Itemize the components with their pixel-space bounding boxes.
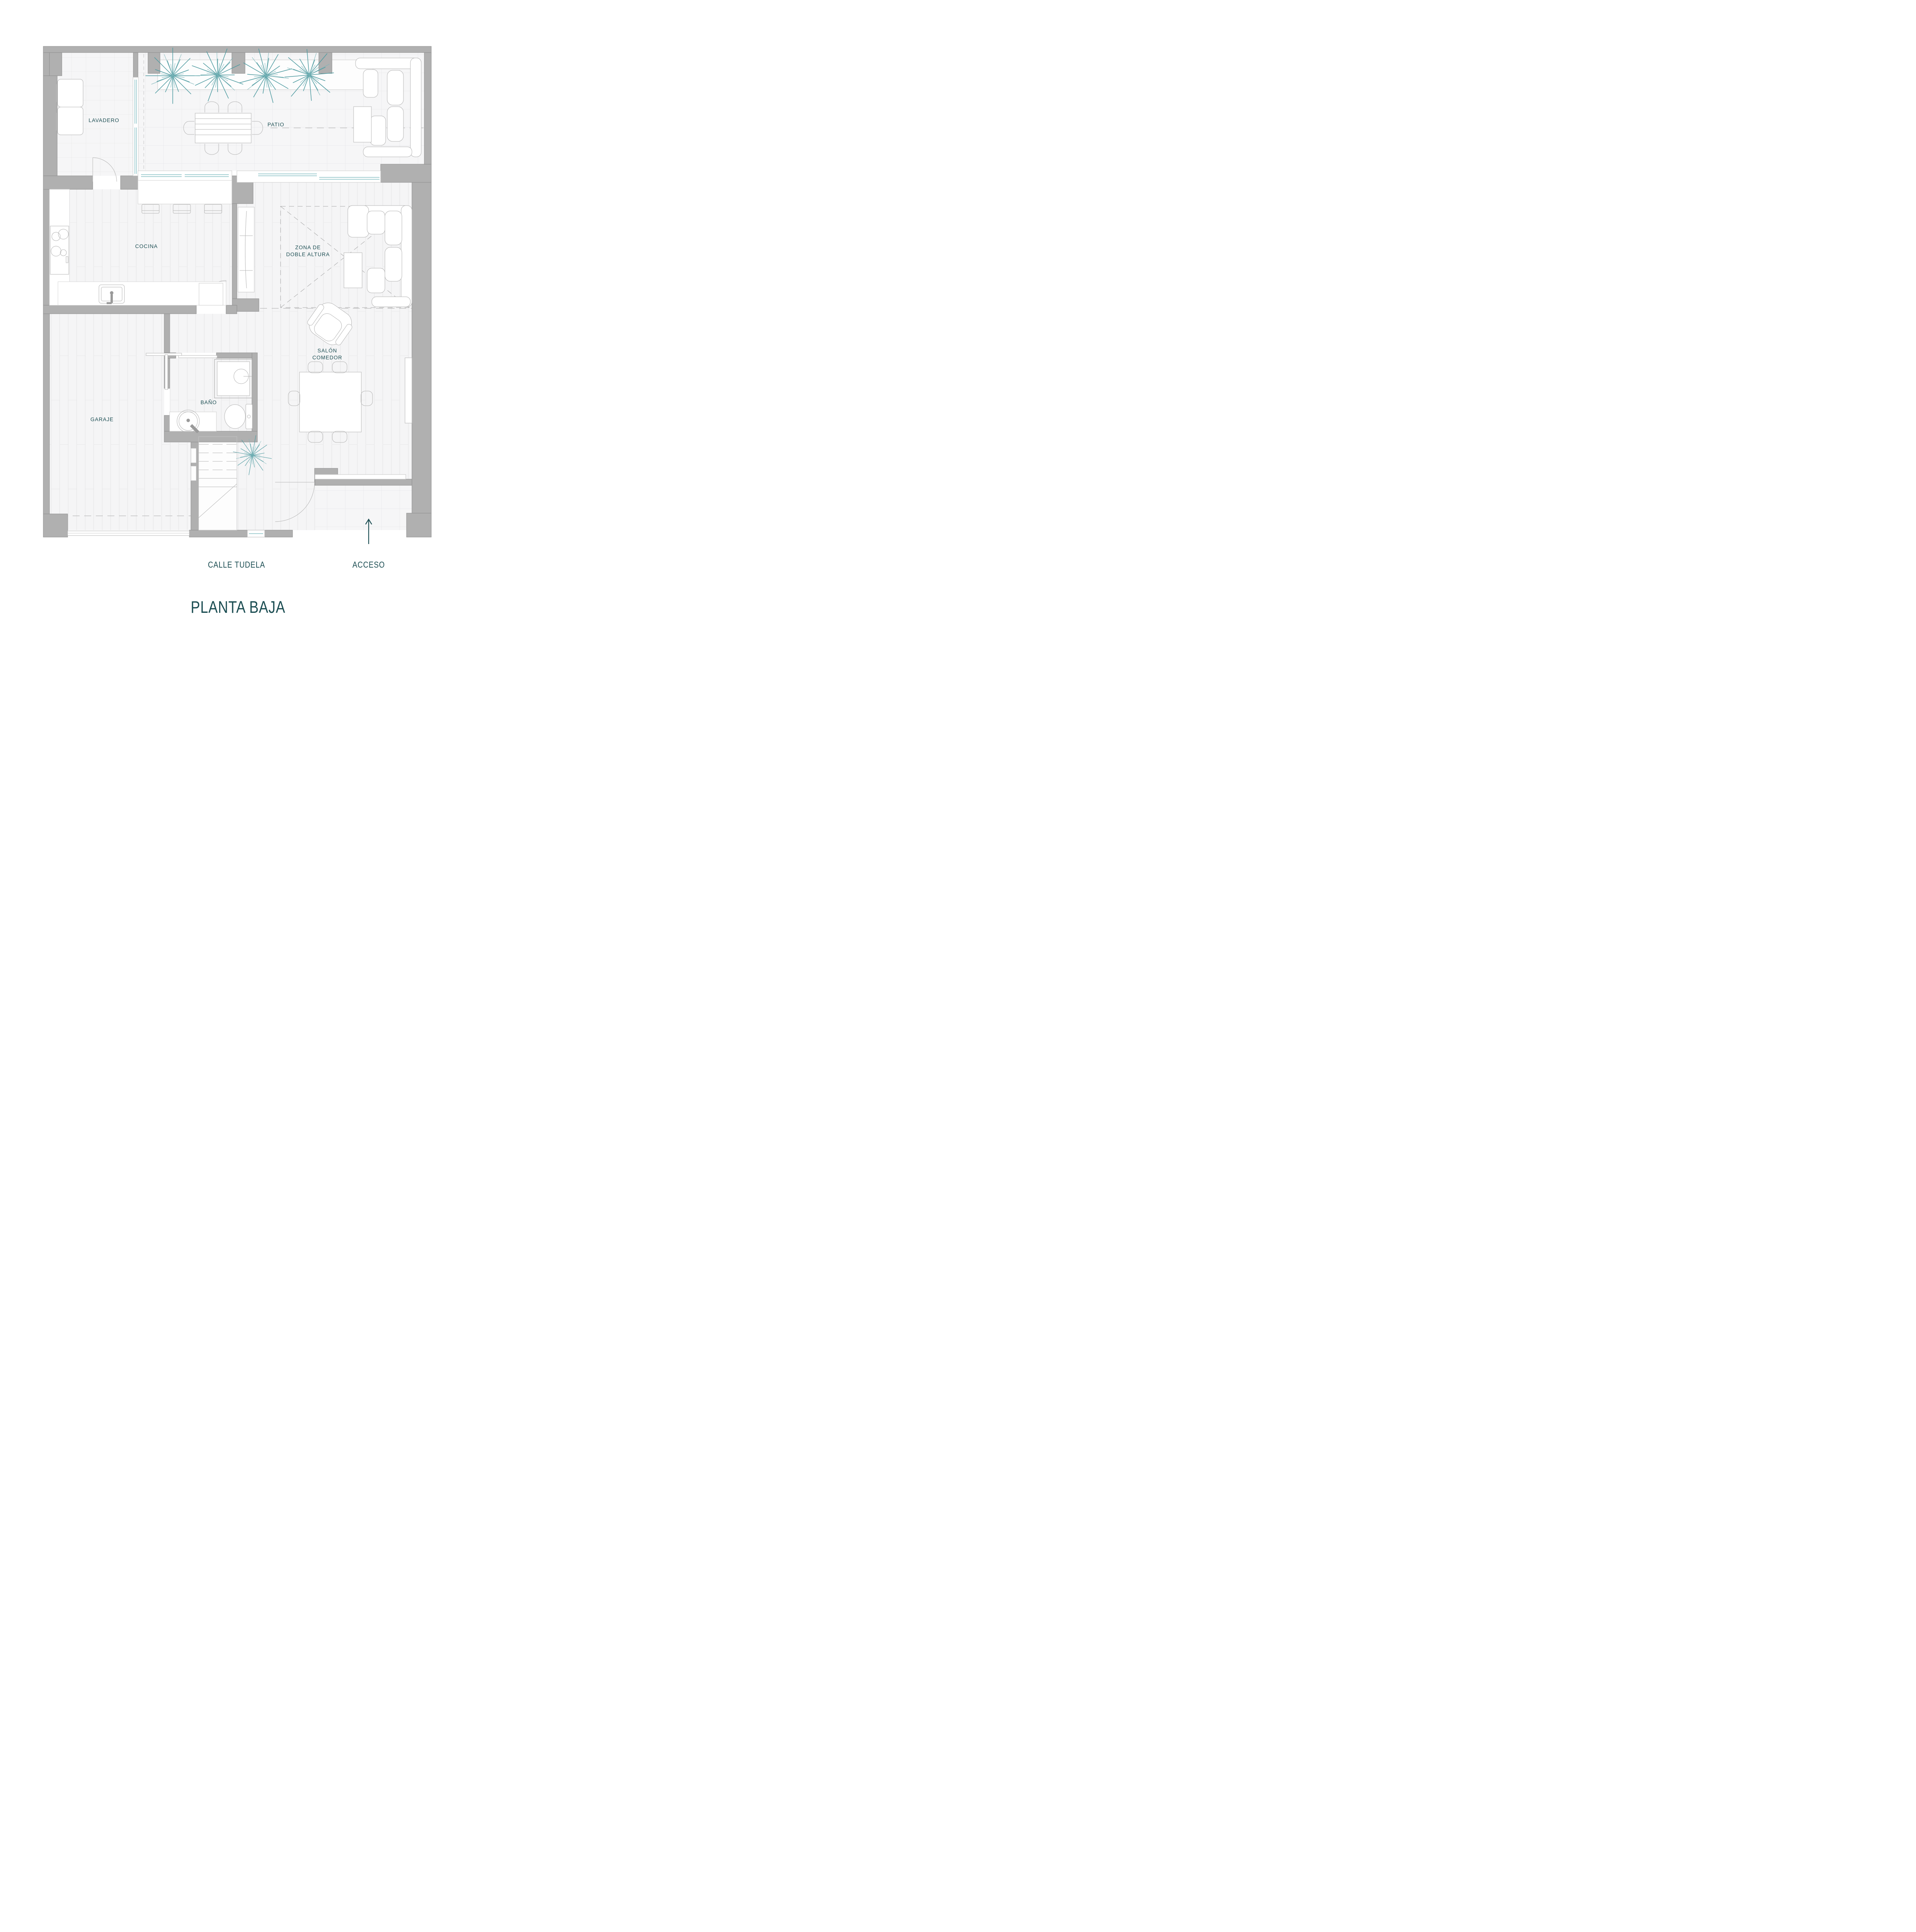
room-label-patio: PATIO <box>267 121 284 128</box>
garage-sliding-door <box>165 355 168 389</box>
porch-wall <box>315 479 412 485</box>
salon-line1: SALÓN <box>312 347 342 354</box>
toilet <box>225 404 252 429</box>
room-label-cocina: COCINA <box>135 243 158 250</box>
patio-side-table <box>354 107 371 142</box>
room-label-zona-doble-altura: ZONA DE DOBLE ALTURA <box>286 244 330 258</box>
salon-line2: COMEDOR <box>312 354 342 361</box>
room-label-garaje: GARAJE <box>90 416 114 423</box>
cooktop <box>50 226 69 274</box>
coffee-table <box>344 253 362 288</box>
floor-plan-page: LAVADERO PATIO COCINA ZONA DE DOBLE ALTU… <box>0 0 479 678</box>
bathroom-sliding-door <box>146 353 182 355</box>
washer-dryer <box>56 79 83 135</box>
access-label: ACCESO <box>352 560 385 570</box>
shower <box>214 359 252 398</box>
room-label-salon-comedor: SALÓN COMEDOR <box>312 347 342 361</box>
page-title: PLANTA BAJA <box>191 598 286 617</box>
street-label: CALLE TUDELA <box>208 560 265 570</box>
room-label-bano: BAÑO <box>201 399 217 406</box>
zona-line1: ZONA DE <box>286 244 330 251</box>
bathroom-vanity <box>170 410 216 434</box>
zona-line2: DOBLE ALTURA <box>286 251 330 258</box>
room-label-lavadero: LAVADERO <box>88 117 119 124</box>
radiator <box>238 207 254 292</box>
floor-plan-drawing <box>0 0 479 678</box>
sideboard <box>405 358 412 423</box>
dining-table <box>288 362 373 442</box>
access-arrow-icon <box>366 519 372 544</box>
